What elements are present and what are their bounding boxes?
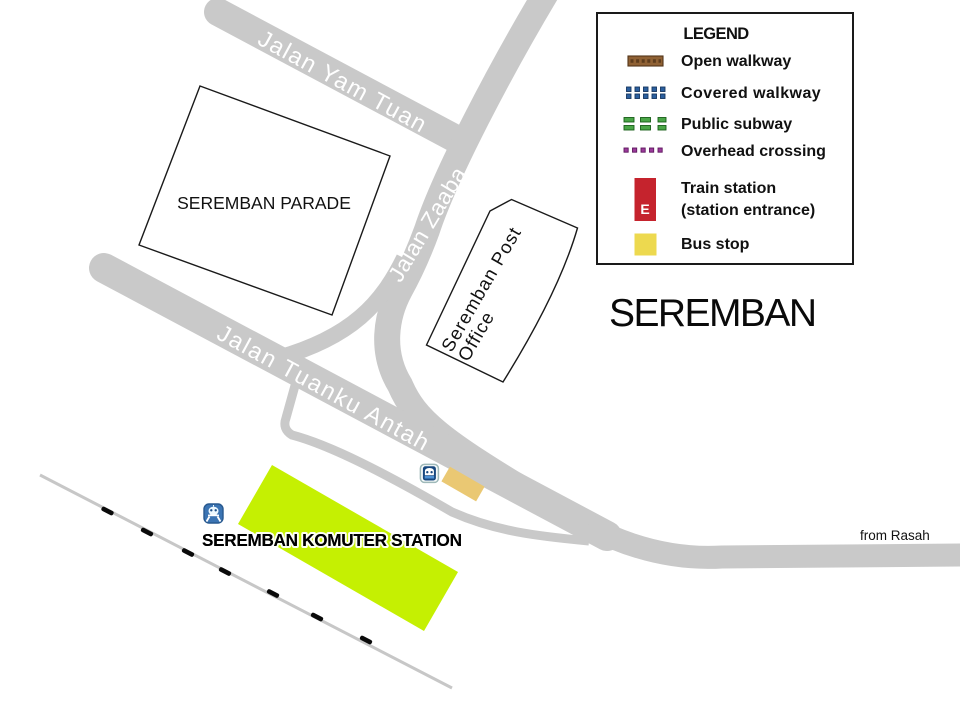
- svg-text:Train station: Train station: [681, 180, 776, 197]
- svg-text:from Rasah: from Rasah: [860, 528, 930, 543]
- svg-text:SEREMBAN PARADE: SEREMBAN PARADE: [177, 193, 351, 213]
- svg-text:LEGEND: LEGEND: [683, 25, 749, 43]
- svg-text:SEREMBAN: SEREMBAN: [609, 292, 817, 335]
- svg-text:Public subway: Public subway: [681, 116, 792, 133]
- svg-text:Open walkway: Open walkway: [681, 53, 791, 70]
- svg-text:E: E: [640, 201, 649, 217]
- svg-text:(station entrance): (station entrance): [681, 202, 815, 219]
- svg-text:Bus stop: Bus stop: [681, 236, 750, 253]
- svg-text:Covered walkway: Covered walkway: [681, 85, 821, 102]
- svg-text:Overhead crossing: Overhead crossing: [681, 143, 826, 160]
- svg-text:SEREMBAN KOMUTER STATION: SEREMBAN KOMUTER STATION: [202, 530, 462, 550]
